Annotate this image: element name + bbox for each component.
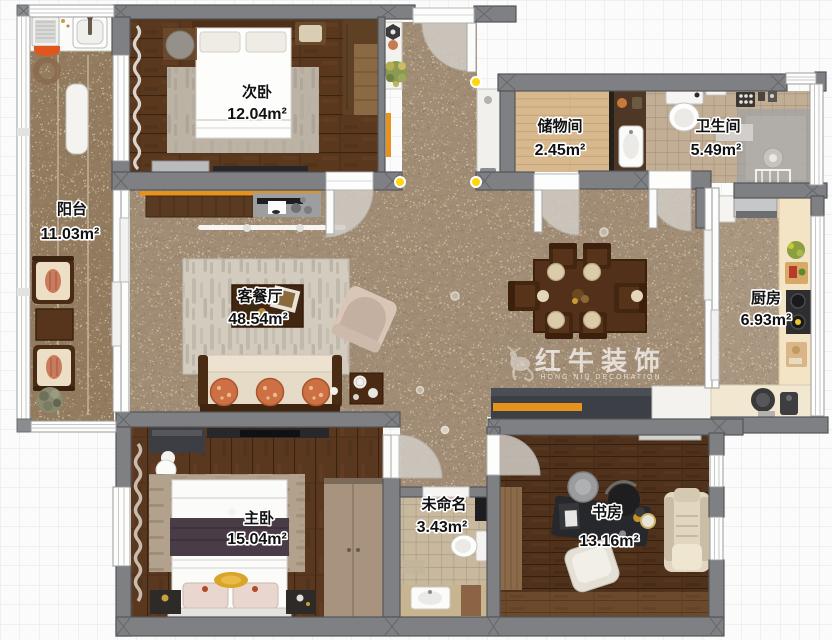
svg-text:阳台: 阳台: [57, 200, 87, 218]
svg-text:厨房: 厨房: [751, 289, 781, 307]
svg-text:主卧: 主卧: [244, 509, 274, 527]
svg-text:6.93m²: 6.93m²: [741, 312, 792, 329]
svg-text:48.54m²: 48.54m²: [228, 311, 288, 328]
svg-text:次卧: 次卧: [242, 83, 272, 101]
svg-text:13.16m²: 13.16m²: [579, 533, 639, 550]
svg-text:客餐厅: 客餐厅: [236, 287, 282, 305]
svg-text:3.43m²: 3.43m²: [417, 519, 468, 536]
svg-text:HONG NIU DECORATION: HONG NIU DECORATION: [540, 374, 661, 381]
svg-text:未命名: 未命名: [420, 495, 466, 513]
svg-text:书房: 书房: [592, 503, 622, 521]
svg-text:11.03m²: 11.03m²: [41, 226, 100, 243]
svg-text:15.04m²: 15.04m²: [227, 531, 287, 548]
svg-text:12.04m²: 12.04m²: [227, 106, 287, 123]
svg-text:储物间: 储物间: [537, 117, 582, 135]
svg-text:2.45m²: 2.45m²: [535, 142, 586, 159]
svg-text:卫生间: 卫生间: [695, 117, 740, 135]
svg-text:红牛装饰: 红牛装饰: [535, 346, 667, 376]
svg-text:5.49m²: 5.49m²: [691, 142, 742, 159]
